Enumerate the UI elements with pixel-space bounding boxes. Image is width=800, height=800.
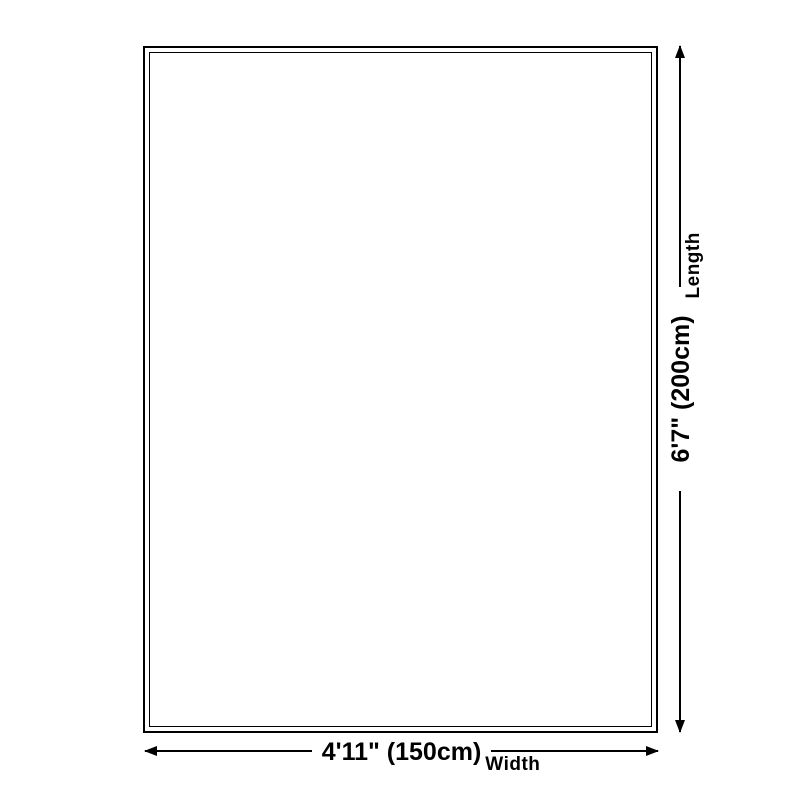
- width-label: Width: [485, 755, 540, 774]
- length-label: Length: [684, 232, 703, 298]
- product-outline-inner: [149, 52, 652, 727]
- arrow-up-icon: [675, 45, 685, 58]
- width-line-right-segment: [491, 750, 658, 752]
- arrow-down-icon: [675, 720, 685, 733]
- length-value: 6'7" (200cm): [669, 315, 694, 462]
- width-line-left-segment: [145, 750, 312, 752]
- arrow-right-icon: [646, 746, 659, 756]
- width-dimension: 4'11" (150cm) Width: [145, 731, 658, 771]
- length-labels: 6'7" (200cm) Length: [668, 287, 693, 490]
- length-dimension: 6'7" (200cm) Length: [658, 46, 702, 732]
- length-line-top-segment: [679, 46, 681, 287]
- length-line-bottom-segment: [679, 491, 681, 732]
- arrow-left-icon: [144, 746, 157, 756]
- width-value: 4'11" (150cm): [322, 740, 482, 765]
- dimension-diagram: 6'7" (200cm) Length 4'11" (150cm) Width: [0, 0, 800, 800]
- product-outline-outer: [143, 46, 658, 733]
- width-labels: 4'11" (150cm) Width: [312, 739, 492, 764]
